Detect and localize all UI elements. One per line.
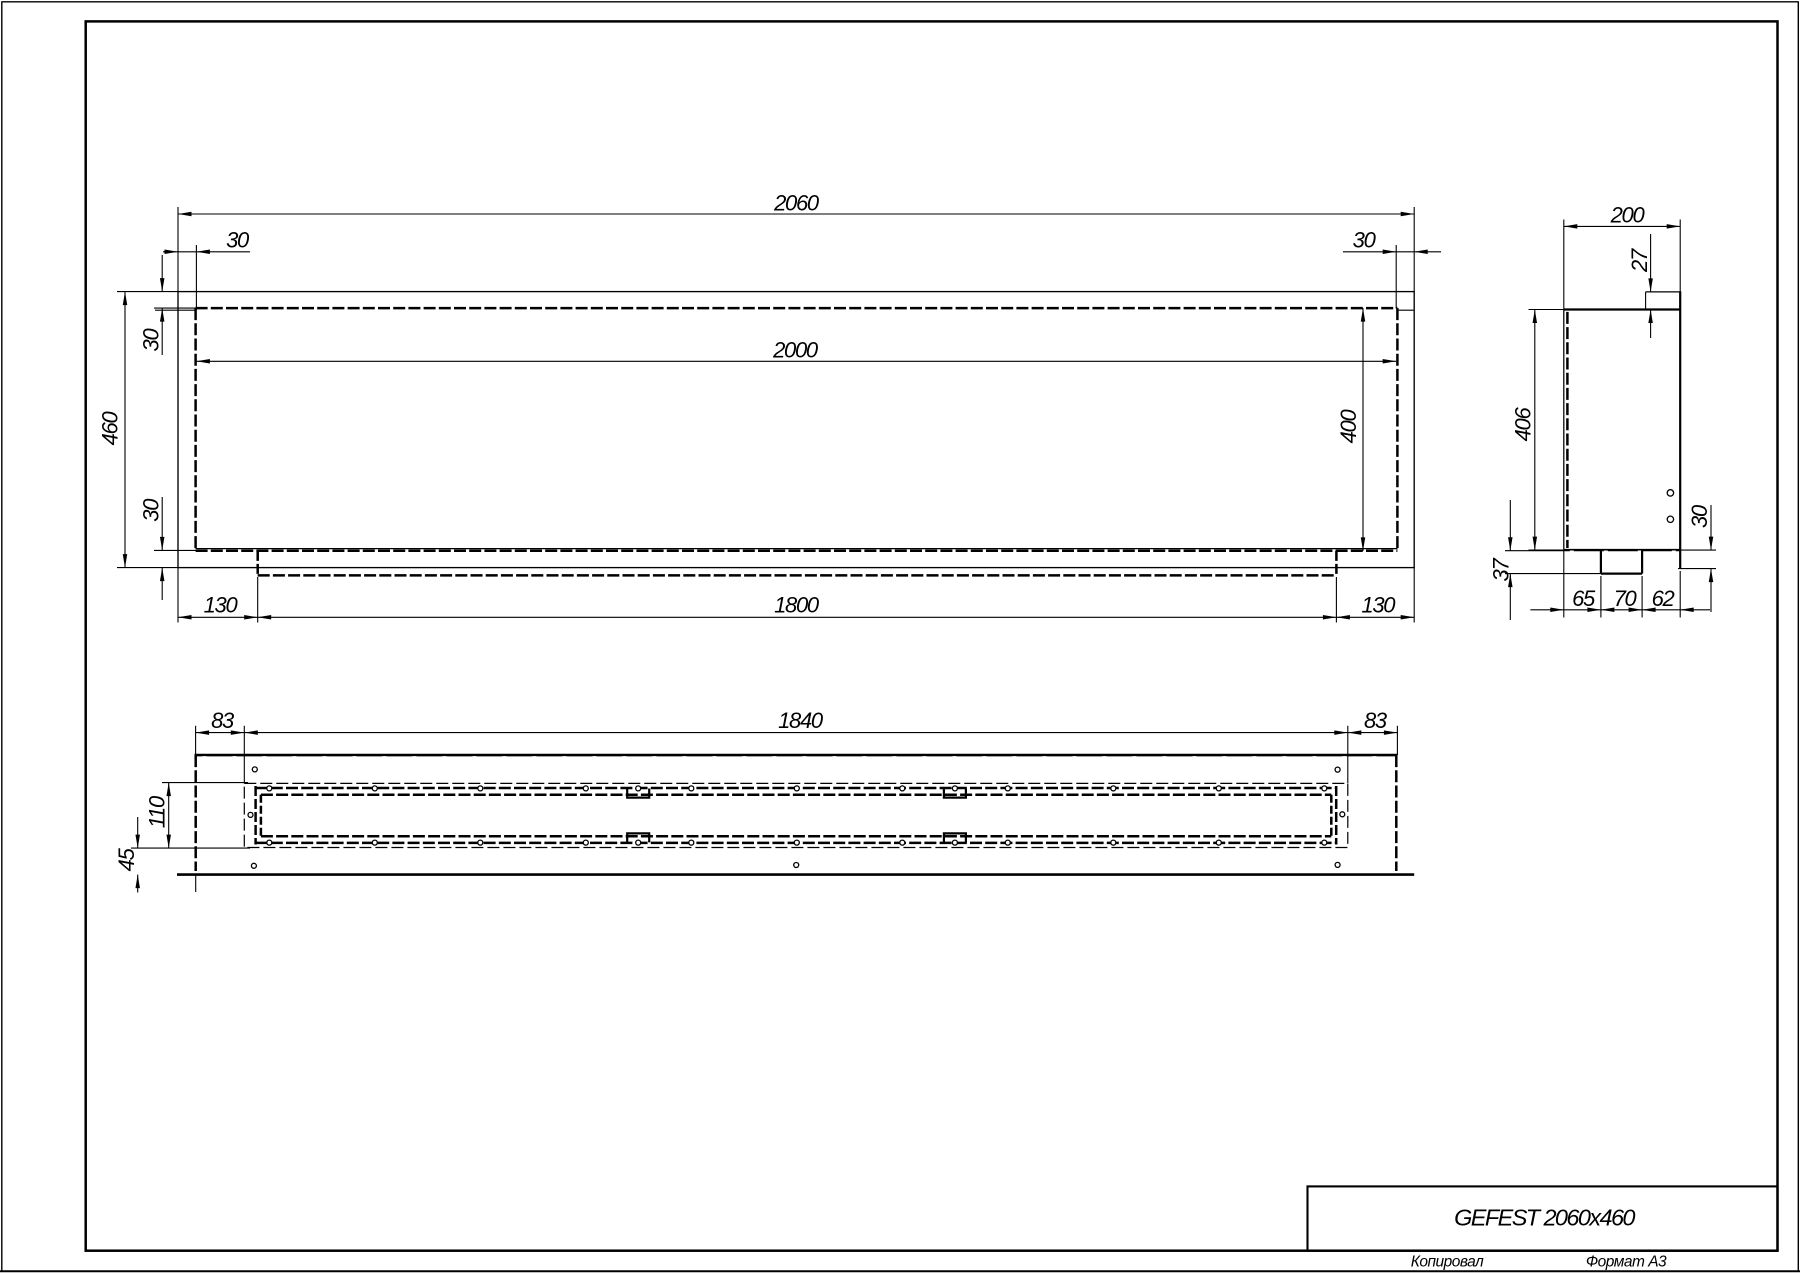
svg-text:1800: 1800 (774, 593, 820, 618)
svg-text:110: 110 (145, 795, 170, 828)
svg-text:406: 406 (1511, 407, 1536, 442)
svg-text:1840: 1840 (778, 708, 824, 733)
svg-text:70: 70 (1614, 586, 1638, 611)
svg-text:45: 45 (114, 847, 139, 871)
svg-text:2000: 2000 (772, 338, 819, 363)
svg-text:200: 200 (1610, 203, 1646, 228)
svg-text:GEFEST 2060x460: GEFEST 2060x460 (1454, 1205, 1635, 1231)
svg-text:Формат А3: Формат А3 (1586, 1254, 1667, 1271)
svg-text:Копировал: Копировал (1411, 1254, 1484, 1271)
svg-text:30: 30 (139, 328, 164, 352)
svg-text:130: 130 (204, 593, 239, 618)
svg-text:2060: 2060 (773, 191, 820, 216)
svg-text:62: 62 (1652, 586, 1675, 611)
svg-text:400: 400 (1336, 409, 1361, 444)
svg-text:30: 30 (226, 228, 250, 253)
svg-text:30: 30 (139, 498, 164, 522)
svg-text:130: 130 (1361, 593, 1396, 618)
svg-text:83: 83 (211, 708, 235, 733)
svg-text:30: 30 (1687, 504, 1712, 528)
svg-text:27: 27 (1627, 248, 1652, 273)
svg-text:65: 65 (1572, 586, 1596, 611)
svg-text:83: 83 (1364, 708, 1388, 733)
svg-text:460: 460 (98, 411, 123, 446)
svg-text:37: 37 (1489, 558, 1514, 582)
svg-text:30: 30 (1353, 228, 1377, 253)
